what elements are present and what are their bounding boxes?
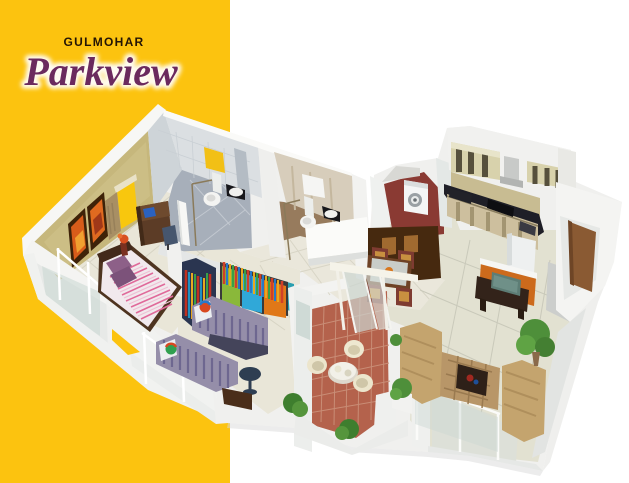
svg-text:GULMOHAR: GULMOHAR [63, 35, 144, 49]
svg-text:Parkview: Parkview [23, 49, 178, 94]
